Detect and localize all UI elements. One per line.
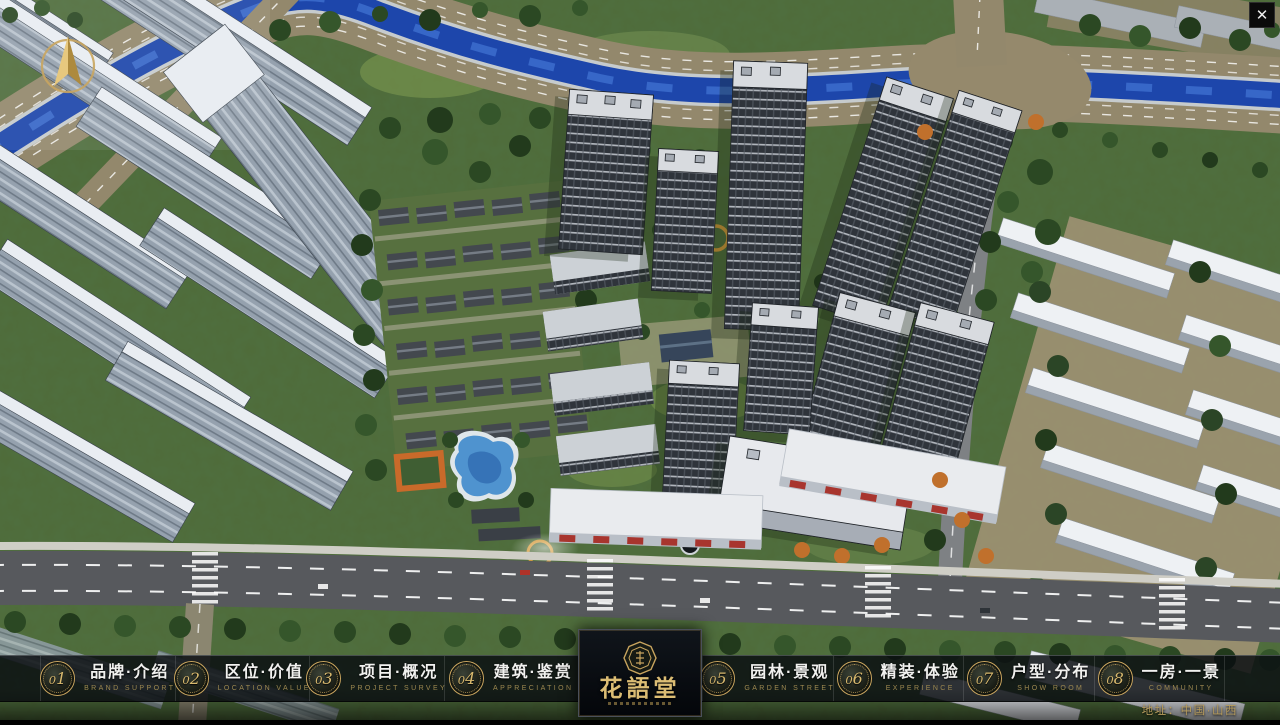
nav-num: 07 (976, 671, 994, 687)
nav-title: 园林·景观 (750, 664, 829, 682)
nav-num: 04 (458, 671, 476, 687)
logo-name: 花語堂 (600, 677, 681, 700)
logo-seal-icon (623, 641, 657, 675)
nav-title: 品牌·介绍 (90, 664, 169, 682)
compass-icon (38, 34, 98, 101)
nav-item-location[interactable]: 02 区位·价值LOCATION VALUE (175, 656, 310, 701)
nav-num: 06 (845, 671, 863, 687)
nav-badge-03: 03 (306, 661, 341, 696)
nav-title: 建筑·鉴赏 (494, 664, 573, 682)
nav-title: 户型·分布 (1011, 664, 1090, 682)
nav-title: 项目·概况 (359, 664, 438, 682)
project-logo[interactable]: 花語堂 (578, 629, 702, 717)
nav-item-interior[interactable]: 06 精装·体验EXPERIENCE (833, 656, 964, 701)
nav-badge-08: 08 (1098, 661, 1133, 696)
nav-title: 精装·体验 (881, 664, 960, 682)
nav-badge-02: 02 (174, 661, 209, 696)
nav-item-architecture[interactable]: 04 建筑·鉴赏APPRECIATION (444, 656, 579, 701)
nav-subtitle: GARDEN STREET (744, 685, 835, 693)
nav-left-spacer (0, 656, 40, 701)
nav-right-spacer (1224, 656, 1280, 701)
nav-num: 08 (1106, 671, 1124, 687)
nav-badge-05: 05 (700, 661, 735, 696)
aerial-render-viewport[interactable] (0, 0, 1280, 720)
nav-item-views[interactable]: 08 一房·一景COMMUNITY (1094, 656, 1225, 701)
nav-num: 01 (49, 671, 67, 687)
site-aerial-render (0, 0, 1280, 720)
nav-item-project[interactable]: 03 项目·概况PROJECT SURVEY (309, 656, 444, 701)
logo-tagline-rule (608, 702, 672, 705)
close-icon: ✕ (1256, 6, 1269, 24)
nav-num: 05 (709, 671, 727, 687)
close-button[interactable]: ✕ (1249, 2, 1275, 28)
nav-badge-06: 06 (837, 661, 872, 696)
nav-subtitle: BRAND SUPPORT (84, 685, 175, 693)
nav-badge-07: 07 (967, 661, 1002, 696)
nav-item-brand[interactable]: 01 品牌·介绍BRAND SUPPORT (40, 656, 175, 701)
nav-badge-01: 01 (40, 661, 75, 696)
footer-address: 地址：中国·山西 (1142, 702, 1238, 718)
nav-subtitle: APPRECIATION (493, 685, 573, 693)
nav-subtitle: EXPERIENCE (886, 685, 955, 693)
nav-num: 03 (315, 671, 333, 687)
nav-subtitle: PROJECT SURVEY (350, 685, 447, 693)
nav-item-floorplan[interactable]: 07 户型·分布SHOW ROOM (963, 656, 1094, 701)
nav-badge-04: 04 (449, 661, 484, 696)
nav-subtitle: COMMUNITY (1149, 685, 1214, 693)
nav-title: 一房·一景 (1142, 664, 1221, 682)
nav-item-garden[interactable]: 05 园林·景观GARDEN STREET (702, 656, 833, 701)
nav-num: 02 (182, 671, 200, 687)
nav-subtitle: SHOW ROOM (1017, 685, 1084, 693)
nav-subtitle: LOCATION VALUE (218, 685, 311, 693)
nav-title: 区位·价值 (225, 664, 304, 682)
